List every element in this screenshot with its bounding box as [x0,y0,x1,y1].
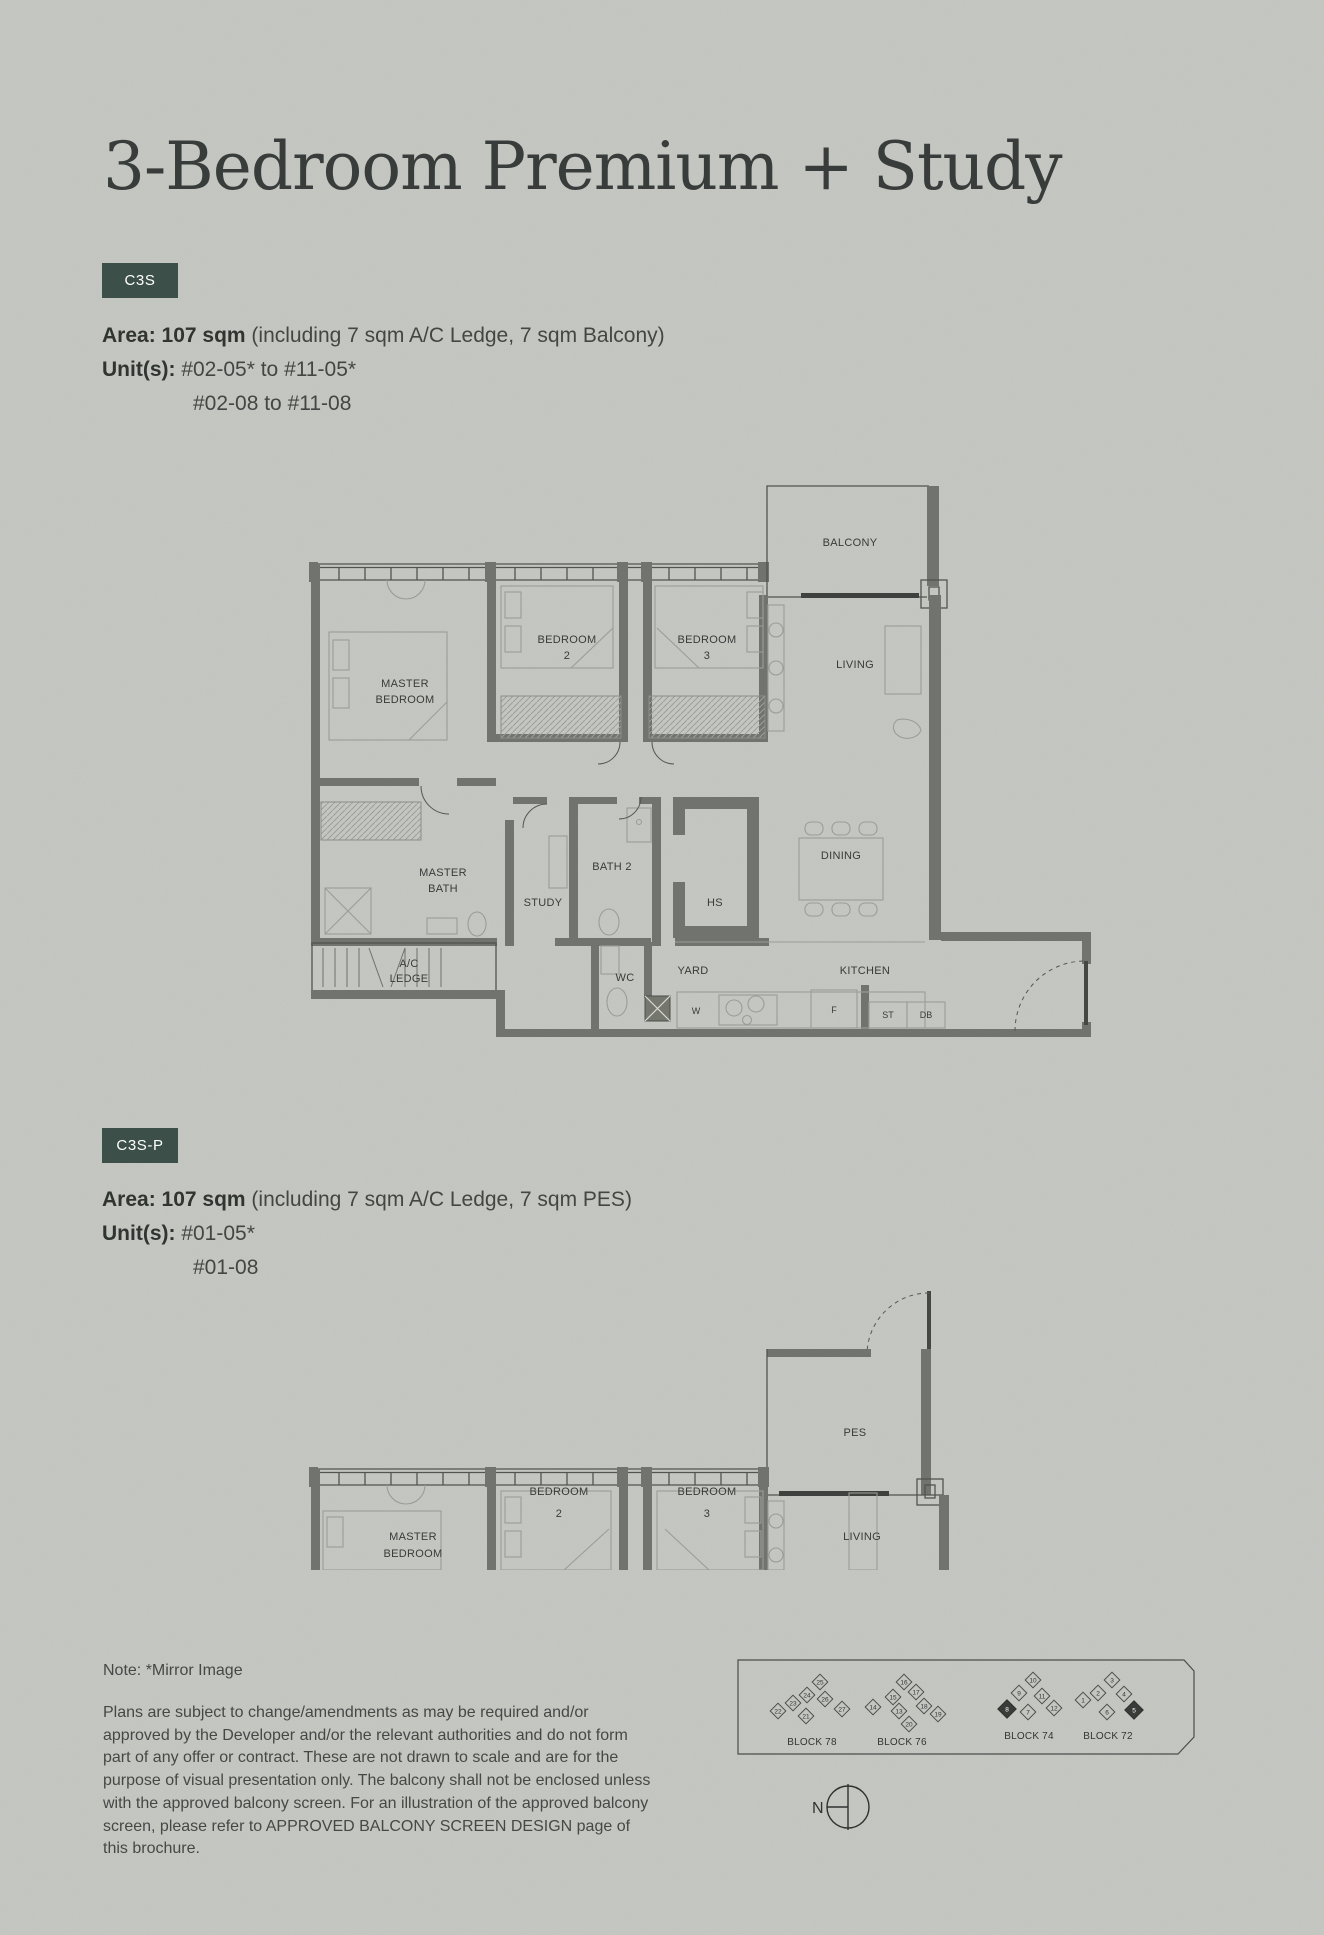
site-key-block-78-label: BLOCK 78 [787,1737,837,1748]
site-key-block-76: 16 15 14 17 18 13 20 19 [865,1674,946,1732]
room-label-mbath-2: BATH [428,883,458,895]
units-line-1: Unit(s): #01-05* [102,1222,255,1246]
site-key-block-72-label: BLOCK 72 [1083,1731,1133,1742]
floor-plan-c3s: BALCONY MASTER BEDROOM BEDROOM 2 BEDROOM… [309,480,1099,1056]
appliance-label-db: DB [920,1010,933,1020]
room-label-bath2: BATH 2 [592,861,632,873]
units-label: Unit(s): [102,358,175,381]
site-key-unit: 14 [869,1704,877,1711]
site-key-unit-highlight: 8 [1005,1706,1009,1713]
site-key-unit: 20 [905,1721,913,1728]
units-range-1: #01-05* [181,1222,255,1245]
units-line-2: #01-08 [193,1256,258,1280]
site-key-block-72: 3 2 4 1 6 5 [1075,1672,1143,1720]
room-label-study: STUDY [524,897,563,909]
room-label-bed3-1: BEDROOM [678,1486,737,1498]
site-key-unit: 24 [803,1692,811,1699]
badge-label: C3S [125,272,156,289]
room-label-bed2-1: BEDROOM [530,1486,589,1498]
unit-type-badge-c3s-p: C3S-P [102,1128,178,1163]
site-key-unit: 22 [774,1708,782,1715]
site-key-unit: 10 [1029,1677,1037,1684]
appliance-label-st: ST [882,1010,894,1020]
room-label-pes: PES [844,1427,867,1439]
room-label-bed2-1: BEDROOM [538,634,597,646]
site-key-unit: 1 [1081,1697,1085,1704]
room-label-living: LIVING [843,1531,881,1543]
area-bold: Area: 107 sqm [102,1188,246,1211]
site-key-unit: 23 [789,1700,797,1707]
room-label-wc: WC [616,972,635,984]
room-label-master-2: BEDROOM [384,1548,443,1560]
room-label-ac-2: LEDGE [390,973,429,985]
site-key-unit: 11 [1039,1693,1046,1700]
mirror-image-note: Note: *Mirror Image [103,1662,243,1680]
site-key-unit: 7 [1026,1709,1030,1716]
north-indicator: N [800,1776,890,1838]
appliance-label-washer: W [692,1006,701,1016]
area-rest: (including 7 sqm A/C Ledge, 7 sqm Balcon… [246,324,665,347]
site-key-block-78: 25 24 23 22 26 27 21 [770,1674,850,1724]
north-symbol-icon [827,1784,869,1830]
room-label-balcony: BALCONY [823,537,878,549]
site-key-unit: 19 [934,1711,942,1718]
site-key-unit: 27 [838,1706,846,1713]
room-label-bed3-1: BEDROOM [678,634,737,646]
site-key-unit: 2 [1096,1690,1100,1697]
area-line-2: Area: 107 sqm (including 7 sqm A/C Ledge… [102,1188,632,1212]
room-label-mbath-1: MASTER [419,867,467,879]
room-label-dining: DINING [821,850,861,862]
room-label-living: LIVING [836,659,874,671]
room-label-master-2: BEDROOM [376,694,435,706]
room-label-ac-1: A/C [399,958,418,970]
disclaimer-text: Plans are subject to change/amendments a… [103,1702,651,1861]
appliance-label-fridge: F [831,1005,837,1015]
page-title: 3-Bedroom Premium + Study [103,128,1203,205]
area-bold: Area: 107 sqm [102,324,246,347]
site-key-unit: 3 [1110,1677,1114,1684]
units-line-1: Unit(s): #02-05* to #11-05* [102,358,356,382]
floor-plan-c3s-p: PES MASTER BEDROOM BEDROOM 2 BEDROOM 3 L… [309,1283,989,1570]
site-key-unit: 6 [1105,1709,1109,1716]
site-key-unit: 25 [816,1679,824,1686]
site-key-unit: 18 [920,1703,928,1710]
unit-type-badge-c3s: C3S [102,263,178,298]
site-key-block-76-label: BLOCK 76 [877,1737,927,1748]
site-key-unit: 13 [895,1708,903,1715]
units-line-2: #02-08 to #11-08 [193,392,351,416]
site-key-block-74-label: BLOCK 74 [1004,1731,1054,1742]
site-key-unit: 9 [1017,1690,1021,1697]
walls [309,486,1091,1037]
site-key-unit: 21 [802,1713,810,1720]
units-label: Unit(s): [102,1222,175,1245]
site-key-unit: 16 [900,1679,908,1686]
area-line-1: Area: 107 sqm (including 7 sqm A/C Ledge… [102,324,665,348]
room-label-bed3-2: 3 [704,1508,710,1520]
room-label-bed2-2: 2 [556,1508,562,1520]
room-label-yard: YARD [678,965,709,977]
site-key-unit: 15 [889,1694,897,1701]
north-label: N [812,1800,824,1817]
room-label-hs: HS [707,897,723,909]
badge-label: C3S-P [116,1137,163,1154]
room-label-bed3-2: 3 [704,650,710,662]
site-key-map: 25 24 23 22 26 27 21 BLOCK 78 16 15 14 1… [736,1658,1198,1758]
area-rest: (including 7 sqm A/C Ledge, 7 sqm PES) [246,1188,632,1211]
room-label-master-1: MASTER [381,678,429,690]
site-key-block-74: 10 9 11 12 7 8 [998,1672,1062,1720]
site-key-unit: 4 [1122,1691,1126,1698]
brochure-page: 3-Bedroom Premium + Study C3S Area: 107 … [0,0,1324,1935]
units-range-1: #02-05* to #11-05* [181,358,356,381]
site-key-unit: 12 [1050,1705,1058,1712]
room-label-master-1: MASTER [389,1531,437,1543]
room-label-bed2-2: 2 [564,650,570,662]
site-key-unit: 17 [912,1689,920,1696]
site-key-unit: 26 [821,1696,829,1703]
site-key-unit-highlight: 5 [1132,1707,1136,1714]
room-label-kitchen: KITCHEN [840,965,890,977]
